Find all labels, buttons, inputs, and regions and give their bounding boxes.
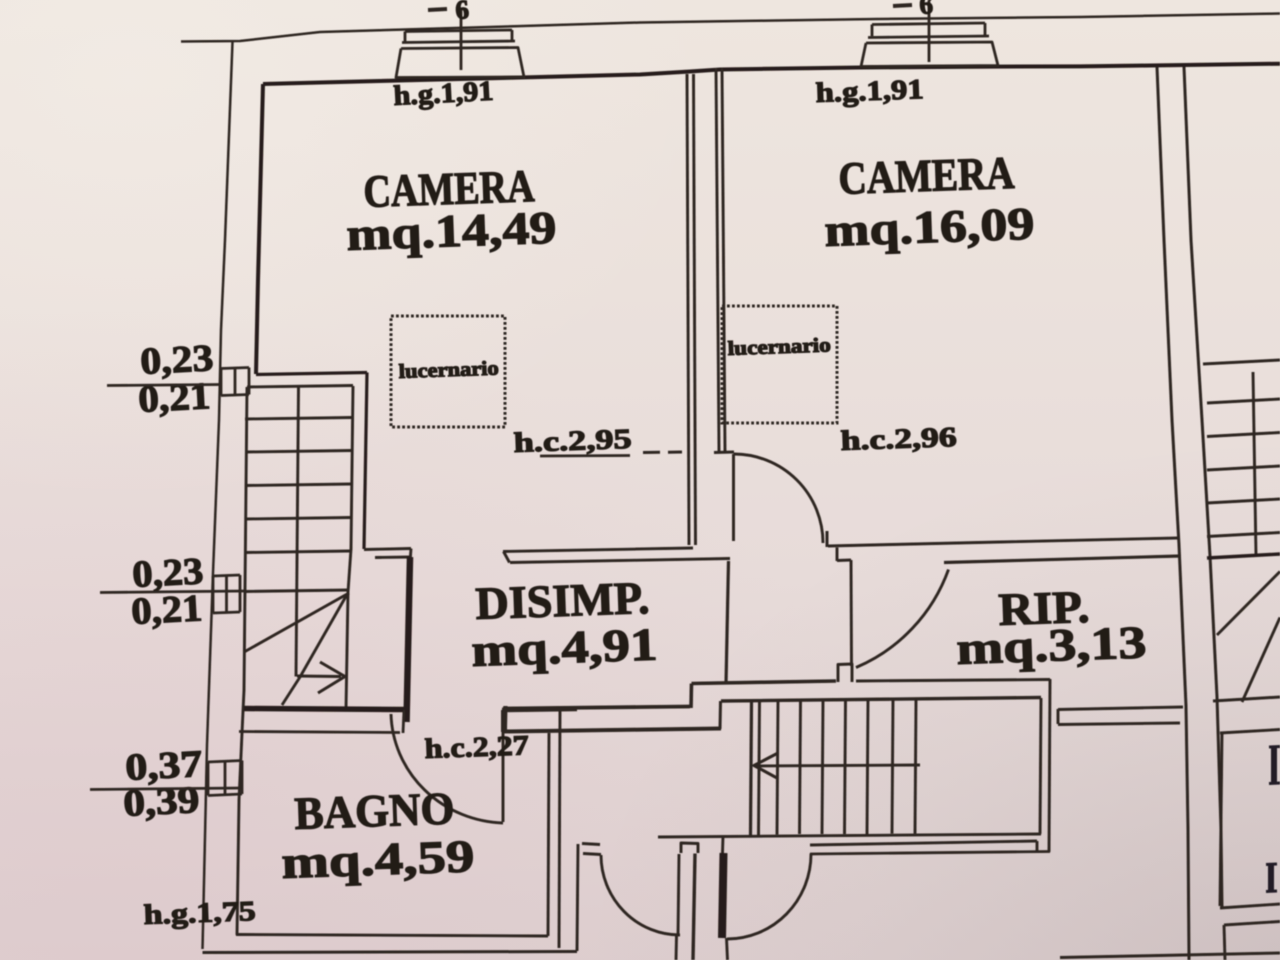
svg-text:h.g.1,91: h.g.1,91 <box>815 74 924 109</box>
svg-text:6: 6 <box>918 0 934 20</box>
svg-text:h.g.1,91: h.g.1,91 <box>393 76 494 112</box>
svg-text:mq.4,59: mq.4,59 <box>281 830 476 888</box>
svg-text:lucernario: lucernario <box>727 334 831 360</box>
svg-text:h.c.2,27: h.c.2,27 <box>424 730 529 765</box>
svg-text:BAGNO: BAGNO <box>294 782 456 839</box>
svg-text:mq.16,09: mq.16,09 <box>824 198 1036 256</box>
svg-text:h.c.2,95: h.c.2,95 <box>513 424 632 459</box>
svg-text:mq.4,91: mq.4,91 <box>471 619 659 676</box>
svg-text:mq.14,49: mq.14,49 <box>346 202 558 260</box>
svg-text:CAMERA: CAMERA <box>838 147 1016 204</box>
svg-text:lucernario: lucernario <box>398 358 499 383</box>
svg-text:0,39: 0,39 <box>122 779 200 825</box>
svg-text:6: 6 <box>454 0 470 25</box>
svg-text:0,21: 0,21 <box>137 375 211 421</box>
svg-text:h.g.1,75: h.g.1,75 <box>143 896 256 931</box>
svg-text:h.c.2,96: h.c.2,96 <box>840 422 957 457</box>
svg-text:0,21: 0,21 <box>130 587 203 633</box>
svg-text:mq.3,13: mq.3,13 <box>956 616 1148 674</box>
